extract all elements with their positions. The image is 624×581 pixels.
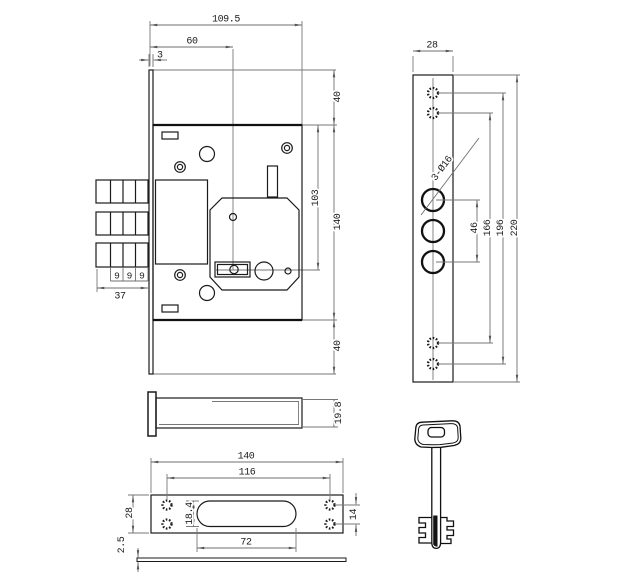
dim-backset: 60 — [186, 37, 198, 48]
dim-key-center: 103 — [311, 189, 322, 206]
strike-plate-side-section — [137, 558, 346, 562]
key-bit-right — [441, 518, 454, 544]
dim-bolt-seg-2: 9 — [127, 271, 133, 282]
side-faceplate — [148, 392, 156, 436]
dim-strike-thickness: 2.5 — [117, 536, 128, 553]
bolt-housing — [156, 180, 208, 264]
deadbolt-top — [96, 180, 148, 203]
dim-bottom-offset: 40 — [333, 340, 344, 352]
dim-bolt-seg-1: 9 — [114, 271, 120, 282]
key-mechanism-housing — [210, 198, 299, 290]
deadbolt-middle — [96, 212, 148, 235]
dim-strike-length: 140 — [238, 452, 255, 463]
side-case — [156, 398, 302, 428]
strike-plate-view: 140 116 18.4 72 14 28 2.5 — [117, 452, 360, 573]
key-bit-left — [419, 518, 432, 544]
dim-faceplate-thickness: 3 — [157, 51, 163, 62]
front-view: 109.5 60 3 40 140 40 103 9 9 9 — [96, 15, 344, 375]
deadbolt-bottom — [96, 243, 148, 267]
dim-bolt-hole-span: 46 — [470, 222, 481, 234]
dim-strike-screw-gap: 14 — [349, 509, 360, 521]
lock-case-outline — [153, 125, 302, 320]
strike-screw-right-2 — [326, 520, 335, 529]
spindle-hole — [255, 262, 273, 280]
key-bow-hole — [428, 428, 445, 438]
dim-top-offset: 40 — [333, 91, 344, 103]
screw-post-top-right — [282, 143, 293, 154]
dim-slot-length: 72 — [240, 538, 252, 549]
dim-screw-span-outer: 196 — [496, 219, 507, 236]
dim-case-thickness: 19.8 — [334, 401, 345, 424]
dim-case-height: 140 — [333, 213, 344, 230]
small-hole — [285, 268, 291, 274]
dim-faceplate-height: 220 — [510, 219, 521, 236]
screw-post-top-left — [175, 162, 186, 173]
faceplate-view: 3-Ø16 28 46 166 196 220 — [413, 41, 521, 383]
screw-post-bottom-left — [175, 270, 186, 281]
slot-vertical — [268, 166, 278, 197]
slot-bottom — [162, 305, 178, 312]
strike-dimensions: 140 116 18.4 72 14 28 2.5 — [117, 452, 360, 573]
case-hole-bottom — [200, 286, 215, 301]
strike-screw-left-2 — [163, 520, 172, 529]
key-illustration — [415, 421, 461, 549]
dim-strike-screw-span: 116 — [239, 468, 256, 479]
strike-screw-left-1 — [163, 501, 172, 510]
side-dimensions: 19.8 — [303, 400, 345, 428]
dim-screw-span-inner: 166 — [483, 219, 494, 236]
slot-top — [162, 132, 178, 139]
keyhole-slot — [215, 262, 250, 277]
dim-bolt-throw: 37 — [114, 292, 126, 303]
dim-bolt-seg-3: 9 — [139, 271, 145, 282]
dim-strike-height: 28 — [125, 507, 136, 519]
drawing-sheet: 109.5 60 3 40 140 40 103 9 9 9 — [0, 0, 624, 581]
key-bit-stripe — [433, 516, 437, 547]
case-hole-top — [200, 147, 215, 162]
faceplate-edge-strip — [149, 70, 153, 374]
side-view: 19.8 — [148, 392, 345, 436]
strike-screw-right-1 — [326, 501, 335, 510]
lock-technical-drawing: 109.5 60 3 40 140 40 103 9 9 9 — [0, 0, 624, 581]
dim-overall-width: 109.5 — [212, 15, 240, 26]
strike-slot — [197, 501, 296, 527]
dim-faceplate-width: 28 — [426, 41, 438, 52]
dim-slot-height: 18.4 — [185, 502, 196, 525]
